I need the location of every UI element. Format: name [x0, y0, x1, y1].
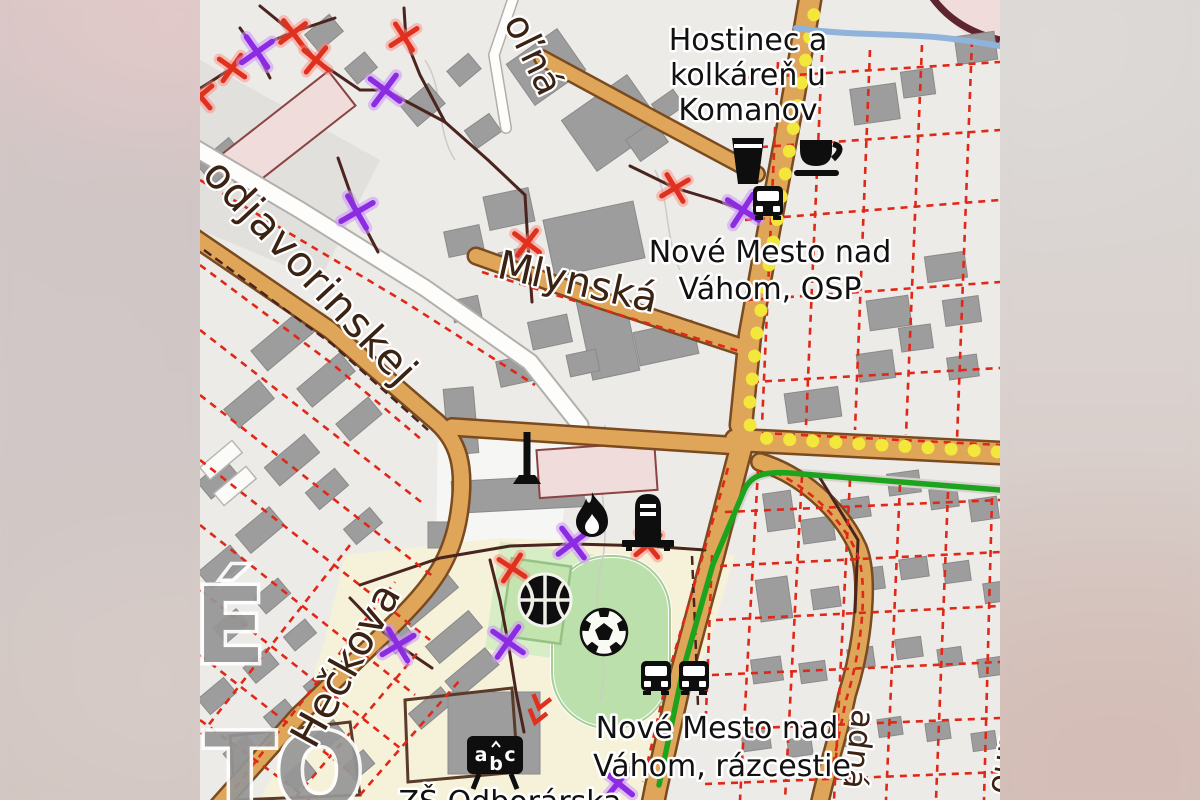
- soccer-ball-icon[interactable]: [580, 608, 629, 655]
- purple-x-marker: [341, 196, 373, 228]
- basketball-icon[interactable]: [519, 574, 571, 626]
- svg-text:Nové Mesto nad: Nové Mesto nad: [596, 711, 839, 746]
- blurred-margin-right: [1000, 0, 1200, 800]
- svg-text:Komanov: Komanov: [678, 93, 817, 128]
- map-svg: a b c É TO oľná Mlynská odjavorinskej He…: [200, 0, 1000, 800]
- svg-text:Nové Mesto nad: Nové Mesto nad: [649, 235, 892, 270]
- svg-text:kolkáreň u: kolkáreň u: [670, 58, 826, 93]
- school-letter-b: b: [489, 753, 503, 775]
- map-canvas[interactable]: a b c É TO oľná Mlynská odjavorinskej He…: [200, 0, 1000, 800]
- school-letter-a: a: [475, 744, 488, 766]
- red-x-marker: [391, 24, 417, 50]
- screenshot-frame: a b c É TO oľná Mlynská odjavorinskej He…: [0, 0, 1200, 800]
- red-x-marker: [304, 48, 328, 72]
- svg-text:Hostinec a: Hostinec a: [669, 23, 828, 58]
- red-x-marker: [662, 175, 689, 202]
- blurred-margin-left: [0, 0, 200, 800]
- svg-text:Váhom, rázcestie: Váhom, rázcestie: [593, 749, 851, 784]
- city-label-fragment-1: É: [200, 565, 266, 687]
- svg-text:Váhom, OSP: Váhom, OSP: [679, 272, 862, 307]
- school-letter-c: c: [504, 744, 515, 766]
- red-x-marker: [499, 555, 525, 581]
- red-x-marker: [281, 21, 306, 46]
- bus-stop-icon[interactable]: [641, 661, 671, 695]
- poi-label-school-clipped: ZŠ Odborárska: [398, 783, 621, 800]
- poi-label-hostinec: Hostinec a kolkáreň u Komanov: [669, 23, 828, 128]
- bus-stop-icon[interactable]: [679, 661, 709, 695]
- bus-stop-icon[interactable]: [753, 186, 783, 220]
